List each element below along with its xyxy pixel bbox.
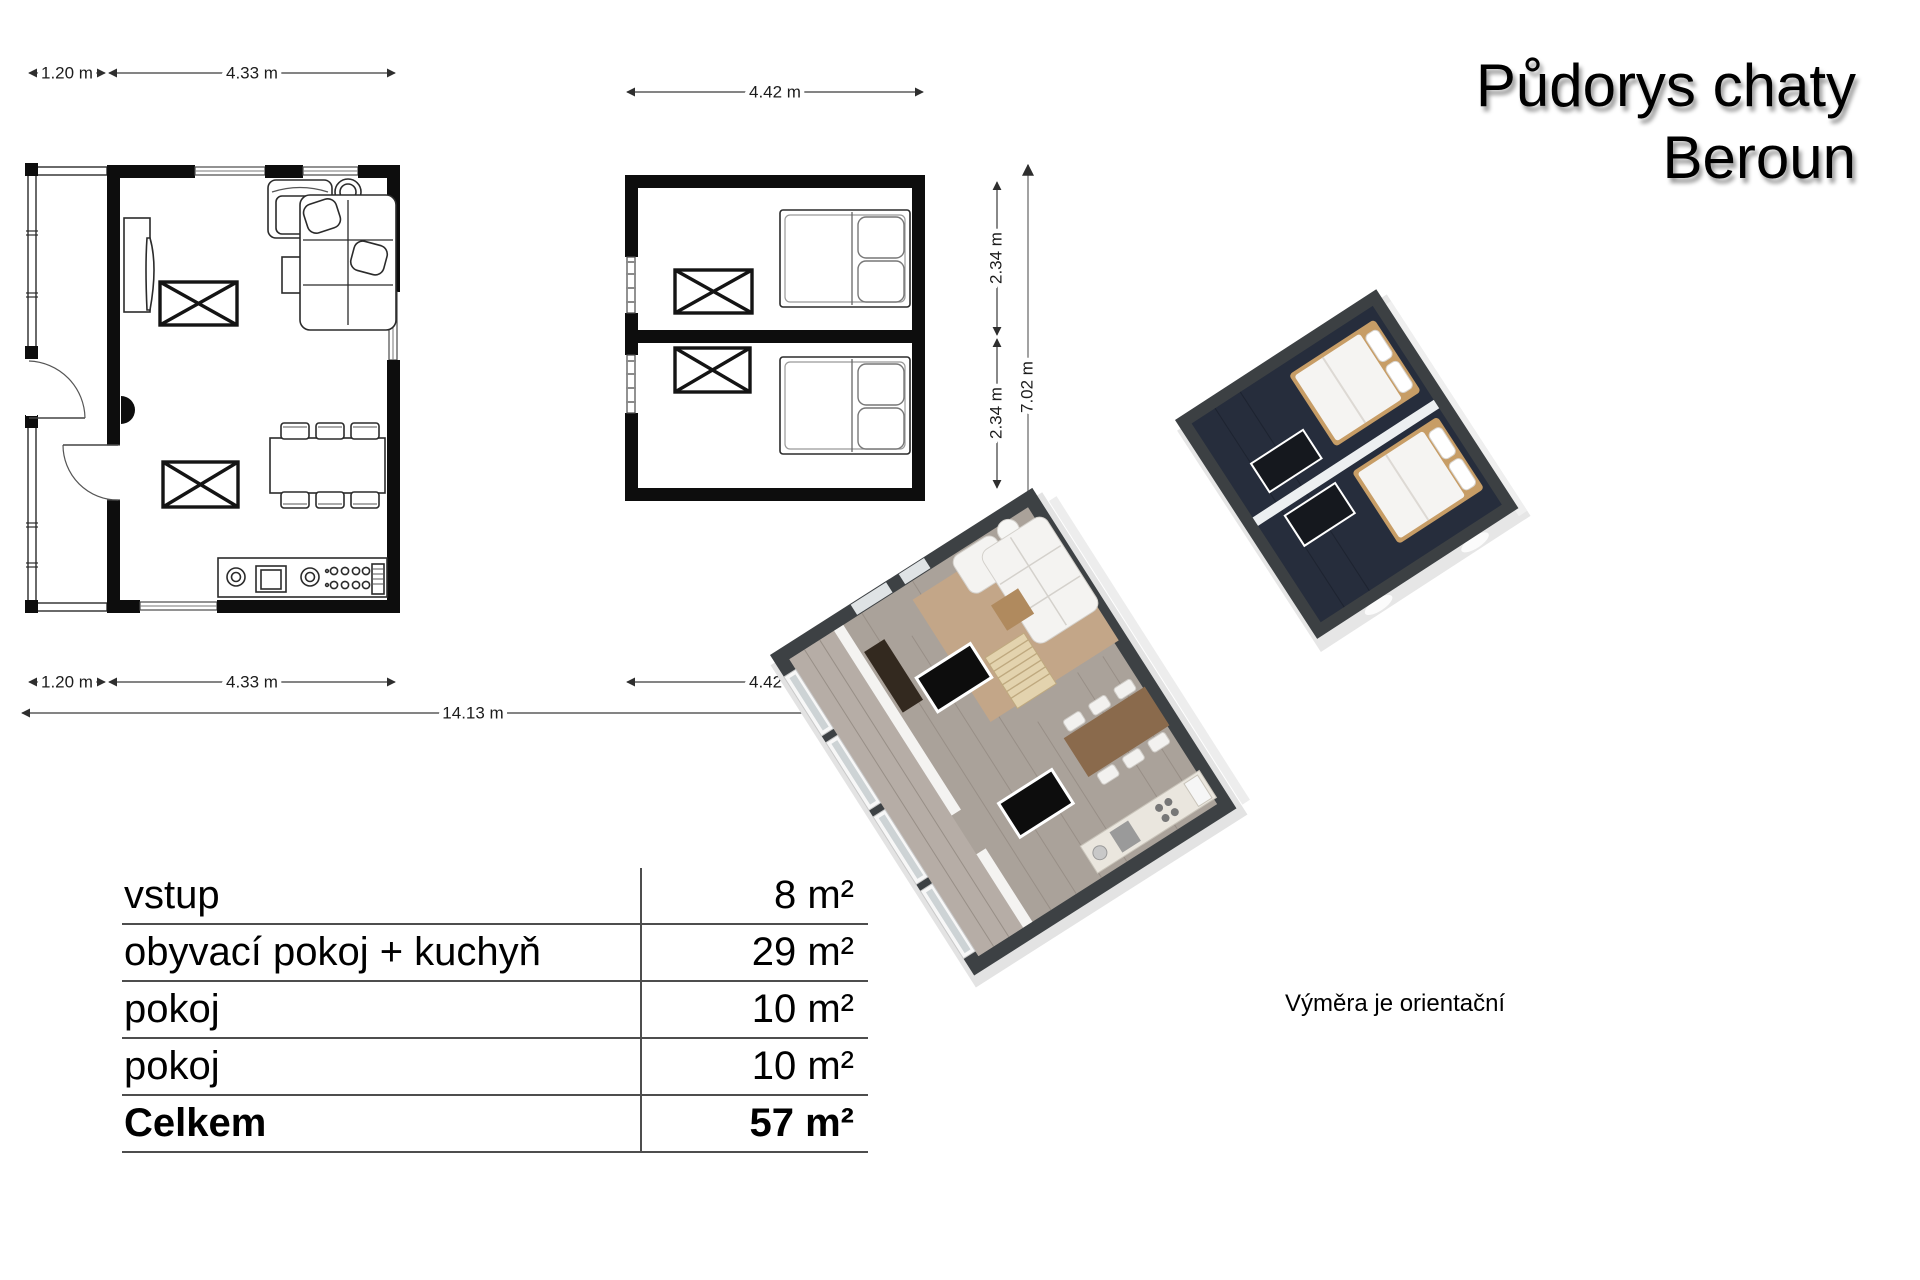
room-label: pokoj — [122, 987, 640, 1032]
ground-floor-furniture — [124, 179, 396, 597]
bed-symbol — [780, 210, 910, 307]
wardrobe-symbol — [160, 282, 237, 325]
table-row: pokoj 10 m² — [122, 1039, 868, 1096]
room-label: obyvací pokoj + kuchyň — [122, 930, 640, 975]
kitchen-symbol — [218, 558, 387, 597]
dim-room2-height: 2.34 m — [986, 387, 1005, 439]
room-area: 10 m² — [640, 982, 868, 1037]
dining-set-symbol — [270, 423, 385, 508]
title-line-1: Půdorys chaty — [1476, 50, 1856, 122]
render-3d-bedrooms — [1172, 286, 1531, 652]
table-row-total: Celkem 57 m² — [122, 1096, 868, 1153]
dim-total-height: 7.02 m — [1017, 361, 1036, 413]
table-row: pokoj 10 m² — [122, 982, 868, 1039]
dim-middle-top: 4.42 m — [749, 82, 801, 101]
dim-total-width: 14.13 m — [442, 703, 503, 722]
sconce-symbol — [121, 396, 135, 424]
table-row: obyvací pokoj + kuchyň 29 m² — [122, 925, 868, 982]
dim-left-top-porch: 1.20 m — [41, 63, 93, 82]
room-label: vstup — [122, 873, 640, 918]
wardrobe-symbol — [163, 462, 238, 507]
dim-left-top-main: 4.33 m — [226, 63, 278, 82]
dim-left-bottom-porch: 1.20 m — [41, 672, 93, 691]
room-area: 10 m² — [640, 1039, 868, 1094]
dim-left-bottom-main: 4.33 m — [226, 672, 278, 691]
wardrobe-symbol — [675, 270, 752, 313]
wardrobe-symbol — [675, 348, 750, 392]
footnote: Výměra je orientační — [1285, 990, 1505, 1018]
floorplan-bedrooms — [625, 175, 925, 501]
floorplan-sheet: 1.20 m 4.33 m 4.42 m — [0, 0, 1920, 1280]
room-area: 8 m² — [640, 868, 868, 923]
total-area: 57 m² — [640, 1096, 868, 1151]
bed-symbol — [780, 357, 910, 454]
area-table: vstup 8 m² obyvací pokoj + kuchyň 29 m² … — [122, 868, 868, 1153]
room-label: pokoj — [122, 1044, 640, 1089]
total-label: Celkem — [122, 1101, 640, 1146]
title-line-2: Beroun — [1476, 122, 1856, 194]
dim-room1-height: 2.34 m — [986, 232, 1005, 284]
room-area: 29 m² — [640, 925, 868, 980]
floorplan-ground — [25, 163, 400, 613]
dimension-lines-top: 1.20 m 4.33 m 4.42 m — [29, 63, 923, 101]
page-title: Půdorys chaty Beroun — [1476, 50, 1856, 194]
table-row: vstup 8 m² — [122, 868, 868, 925]
